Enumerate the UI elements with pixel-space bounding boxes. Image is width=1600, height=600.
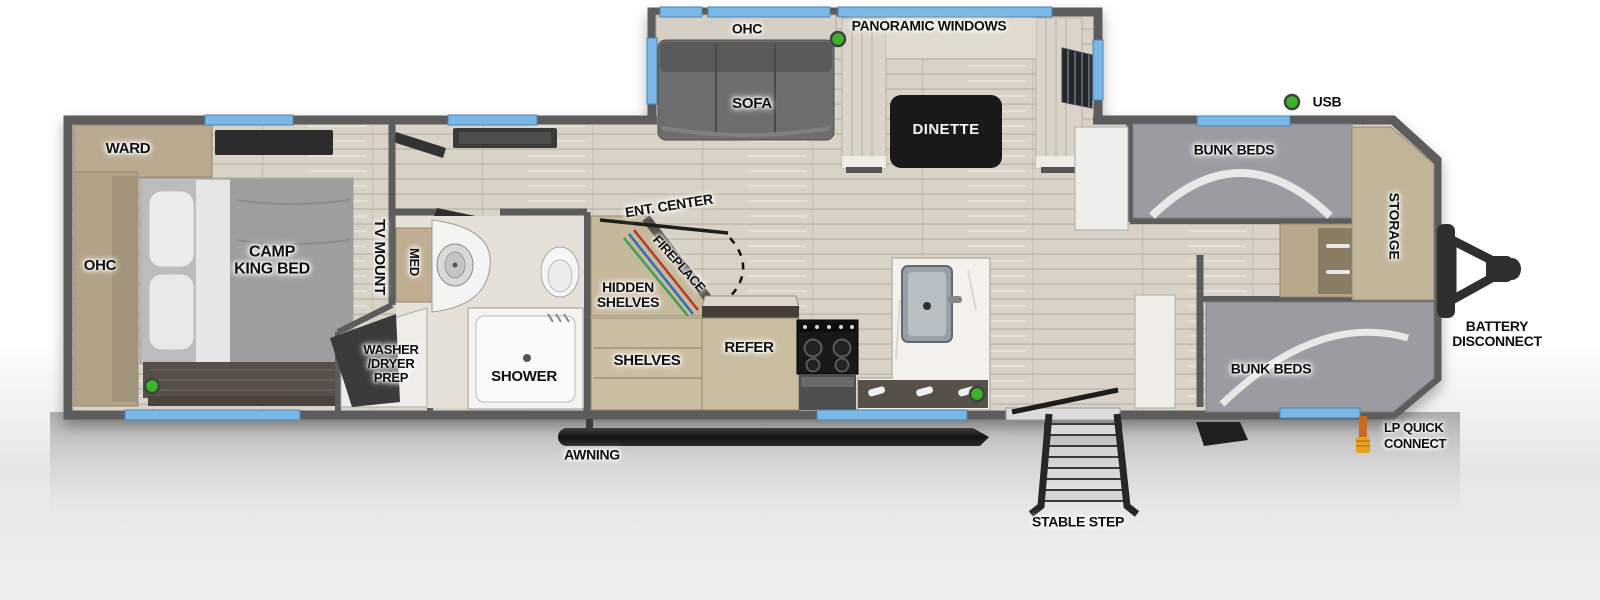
- window: [1093, 40, 1103, 100]
- white-closet-top: [1075, 127, 1128, 230]
- window: [708, 7, 830, 17]
- camp-king-bed: [140, 178, 355, 406]
- floorplan-drawing: [0, 0, 1600, 600]
- dinette-window-blinds: [1062, 48, 1092, 108]
- shower: [468, 308, 583, 409]
- window: [1197, 116, 1290, 126]
- window: [448, 115, 537, 125]
- med-cabinet: [396, 228, 432, 302]
- power-dot-bedroom: [145, 379, 159, 393]
- bedroom-tv: [215, 130, 333, 155]
- pantry: [1135, 295, 1175, 408]
- sofa: [658, 40, 834, 140]
- shelves-cabinet: [591, 318, 706, 410]
- power-dot-slide: [831, 32, 845, 46]
- window: [838, 7, 1052, 17]
- stove: [797, 320, 858, 410]
- kitchen-lower-cabinets: [858, 380, 988, 408]
- hitch: [1437, 224, 1521, 318]
- usb-indicator-dot: [1285, 95, 1299, 109]
- bunk-beds-top: [1133, 124, 1352, 218]
- window: [647, 38, 657, 104]
- power-dot-kitchen: [970, 387, 984, 401]
- window: [125, 410, 300, 420]
- slide-ohc-cabinet: [656, 15, 836, 41]
- window: [660, 7, 702, 17]
- storage-cabinet: [1352, 127, 1434, 300]
- kitchen-sink: [902, 266, 962, 342]
- wardrobe: [74, 125, 212, 177]
- refrigerator: [702, 296, 799, 410]
- dinette-table: [890, 95, 1002, 168]
- window: [817, 410, 967, 420]
- window: [1280, 408, 1360, 418]
- faucet: [948, 296, 962, 303]
- dinette: [842, 18, 1082, 173]
- bunk-beds-bottom: [1206, 302, 1434, 412]
- window: [205, 115, 293, 125]
- rv-floorplan: WARD OHC CAMP KING BED TV MOUNT MED WASH…: [0, 0, 1600, 600]
